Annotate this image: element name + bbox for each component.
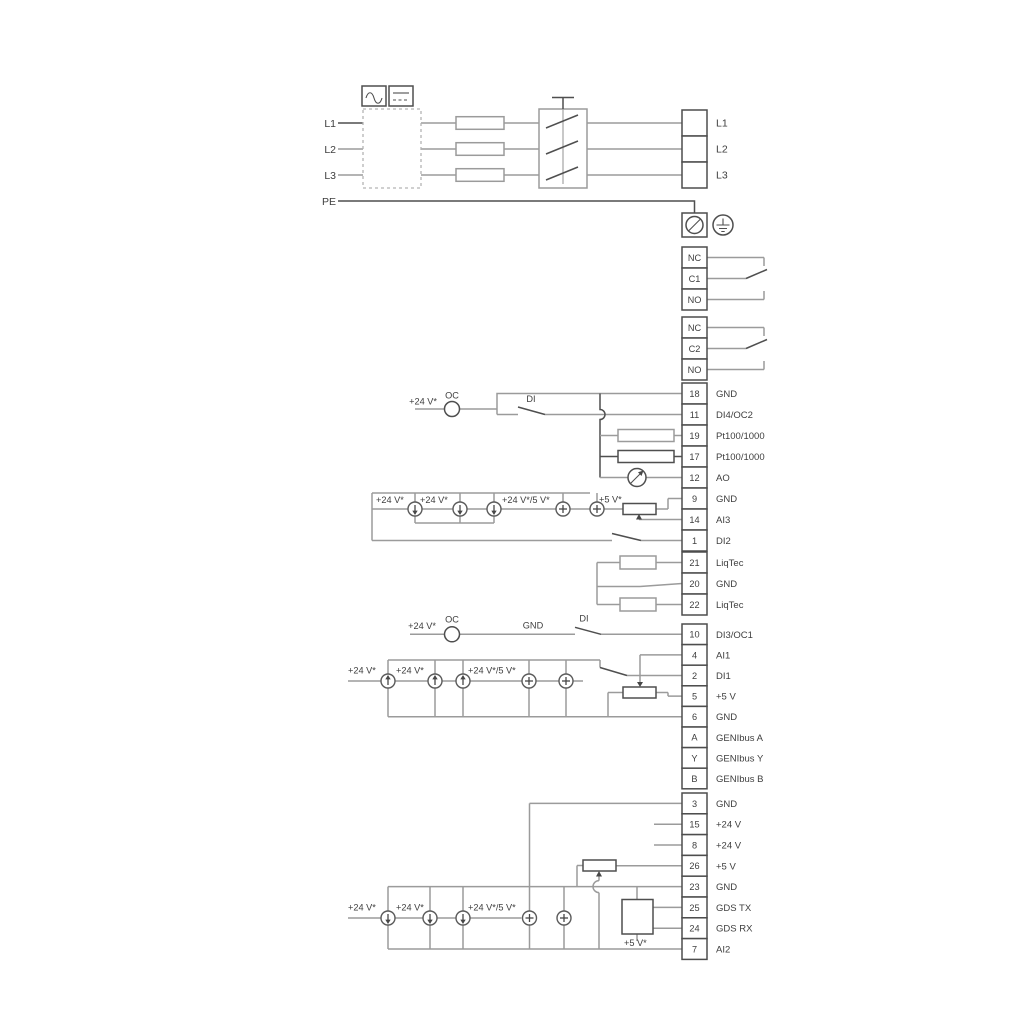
terminal-label: +24 V <box>716 841 742 852</box>
terminal-pin: 5 <box>692 692 697 702</box>
terminal-pin: NO <box>688 295 702 305</box>
terminal-pin: NC <box>688 323 702 333</box>
terminal-label: GENIbus Y <box>716 753 764 764</box>
current-sink-icon <box>423 911 437 925</box>
current-sink-icon <box>428 674 442 688</box>
label-plus24v-5v: +24 V*/5 V* <box>502 495 550 505</box>
terminal-pin: 21 <box>689 558 699 568</box>
ai1-sensor-options <box>348 655 682 717</box>
fuses <box>456 117 504 182</box>
wiring-diagram-page: L1 L2 L3 PE +24 V* OC DI +24 V* +24 V* +… <box>0 0 1024 1024</box>
open-collector-icon <box>445 627 460 642</box>
terminal-pin: NO <box>688 365 702 375</box>
gds-sensor-box <box>622 900 653 935</box>
di1-switch <box>600 668 627 676</box>
terminal-pin: 1 <box>692 536 697 546</box>
mains-output-terminals: L1L2L3 <box>682 110 728 188</box>
open-collector-icon <box>445 402 460 417</box>
label-gnd: GND <box>523 621 544 631</box>
pt100-sensor-2 <box>618 451 674 463</box>
emc-filter-box <box>362 86 421 188</box>
di4-oc2-circuit <box>415 394 682 487</box>
current-sink-icon <box>456 674 470 688</box>
label-plus24v: +24 V* <box>348 666 376 676</box>
terminal-label: GDS TX <box>716 903 752 914</box>
di2-switch <box>612 534 641 541</box>
terminal-label: AI2 <box>716 945 730 956</box>
relay2-contact <box>707 328 767 370</box>
terminal-label: GENIbus A <box>716 733 764 744</box>
terminal-cell <box>682 136 707 162</box>
relay-1-terminals: NCC1NO <box>682 247 707 310</box>
di3-oc1-circuit <box>410 627 682 642</box>
terminal-pin: C2 <box>689 344 701 354</box>
label-plus24v: +24 V* <box>376 495 404 505</box>
label-plus5v: +5 V* <box>624 938 647 948</box>
terminal-label: GND <box>716 799 737 810</box>
label-plus24v: +24 V* <box>420 495 448 505</box>
terminal-label: GND <box>716 579 737 590</box>
terminal-pin: 22 <box>689 600 699 610</box>
terminal-pin: 18 <box>689 389 699 399</box>
potentiometer <box>623 687 656 698</box>
terminal-pin: 19 <box>689 431 699 441</box>
terminal-pin: 6 <box>692 712 697 722</box>
terminal-pin: 25 <box>689 903 699 913</box>
terminal-label: +24 V <box>716 820 742 831</box>
terminal-label: L3 <box>716 170 728 182</box>
mains-input-wiring <box>338 123 682 175</box>
mains-label-l3: L3 <box>324 170 336 182</box>
wiring-diagram: L1 L2 L3 PE +24 V* OC DI +24 V* +24 V* +… <box>0 0 1024 1024</box>
terminal-label: DI2 <box>716 536 731 547</box>
io-block-3: 3GND15+24 V8+24 V26+5 V23GND25GDS TX24GD… <box>682 793 753 959</box>
terminal-pin: Y <box>691 753 697 763</box>
current-sink-icon <box>381 911 395 925</box>
terminal-label: +5 V <box>716 861 736 872</box>
label-plus24v-5v: +24 V*/5 V* <box>468 903 516 913</box>
terminal-pin: 12 <box>689 473 699 483</box>
current-source-icon <box>522 674 536 688</box>
terminal-label: Pt100/1000 <box>716 431 765 442</box>
wiper-arrow-icon <box>596 871 602 877</box>
label-oc: OC <box>445 391 459 401</box>
relay-2-terminals: NCC2NO <box>682 317 707 380</box>
terminal-pin: 9 <box>692 494 697 504</box>
liqtec-wiring <box>597 556 682 611</box>
terminal-pin: NC <box>688 253 702 263</box>
dc-icon-box <box>389 86 413 106</box>
di3-switch <box>575 627 601 634</box>
terminal-pin: 15 <box>689 820 699 830</box>
current-sink-icon <box>453 502 467 516</box>
ai2-sensor-options <box>348 803 682 949</box>
terminal-label: DI4/OC2 <box>716 410 753 421</box>
terminal-pin: 14 <box>689 515 699 525</box>
terminal-pin: 2 <box>692 671 697 681</box>
current-sink-icon <box>381 674 395 688</box>
terminal-pin: C1 <box>689 274 701 284</box>
current-source-icon <box>557 911 571 925</box>
label-plus24v: +24 V* <box>408 621 436 631</box>
label-di: DI <box>579 614 588 624</box>
liqtec-sensor-2 <box>620 598 656 611</box>
current-source-icon <box>559 674 573 688</box>
label-plus24v: +24 V* <box>348 903 376 913</box>
terminal-pin: 20 <box>689 579 699 589</box>
potentiometer <box>623 504 656 515</box>
potentiometer <box>583 860 616 871</box>
terminal-pin: 23 <box>689 882 699 892</box>
terminal-pin: 10 <box>689 630 699 640</box>
terminal-label: L1 <box>716 118 728 130</box>
terminal-label: L2 <box>716 144 728 156</box>
current-source-icon <box>556 502 570 516</box>
terminal-pin: 3 <box>692 799 697 809</box>
earth-icon <box>713 215 733 235</box>
fuse-l2 <box>456 143 504 156</box>
label-plus24v: +24 V* <box>409 397 437 407</box>
terminal-label: +5 V <box>716 692 736 703</box>
terminal-pin: 26 <box>689 861 699 871</box>
terminal-pin: 7 <box>692 944 697 954</box>
current-source-icon <box>523 911 537 925</box>
label-plus24v-5v: +24 V*/5 V* <box>468 666 516 676</box>
label-oc: OC <box>445 615 459 625</box>
terminal-pin: 4 <box>692 650 697 660</box>
terminal-label: GND <box>716 494 737 505</box>
disconnect-switch <box>539 98 587 189</box>
terminal-label: AI1 <box>716 650 730 661</box>
terminal-label: GENIbus B <box>716 774 764 785</box>
mains-label-pe: PE <box>322 196 336 208</box>
terminal-pin: B <box>691 774 697 784</box>
label-plus24v: +24 V* <box>396 903 424 913</box>
io-block-2: 10DI3/OC14AI12DI15+5 V6GNDAGENIbus AYGEN… <box>682 624 764 789</box>
io-block-1: 18GND11DI4/OC219Pt100/100017Pt100/100012… <box>682 383 765 551</box>
terminal-pin: 24 <box>689 924 699 934</box>
terminal-pin: 17 <box>689 452 699 462</box>
fuse-l3 <box>456 169 504 182</box>
terminal-pin: 11 <box>690 410 700 420</box>
pt100-sensor-1 <box>618 430 674 442</box>
analog-output-meter-icon <box>600 469 682 487</box>
di4-switch <box>518 407 545 415</box>
terminal-cell <box>682 110 707 136</box>
terminal-pin: A <box>691 733 698 743</box>
label-plus24v: +24 V* <box>396 666 424 676</box>
terminal-label: LiqTec <box>716 600 744 611</box>
terminal-label: GND <box>716 712 737 723</box>
current-sink-icon <box>456 911 470 925</box>
pe-wiring <box>338 201 733 237</box>
label-di: DI <box>526 394 535 404</box>
mains-label-l1: L1 <box>324 118 336 130</box>
current-sink-icon <box>487 502 501 516</box>
labels: L1 L2 L3 PE +24 V* OC DI +24 V* +24 V* +… <box>322 118 647 948</box>
mains-label-l2: L2 <box>324 144 336 156</box>
terminal-label: GDS RX <box>716 924 753 935</box>
terminal-label: LiqTec <box>716 558 744 569</box>
terminal-label: DI3/OC1 <box>716 630 753 641</box>
terminal-label: AI3 <box>716 515 730 526</box>
terminal-label: AO <box>716 473 730 484</box>
terminal-label: Pt100/1000 <box>716 452 765 463</box>
terminal-label: GND <box>716 389 737 400</box>
terminal-label: DI1 <box>716 671 731 682</box>
fuse-l1 <box>456 117 504 130</box>
terminal-pin: 8 <box>692 840 697 850</box>
liqtec-block: 21LiqTec20GND22LiqTec <box>682 552 744 615</box>
relay1-contact <box>707 258 767 300</box>
terminal-label: GND <box>716 882 737 893</box>
terminal-cell <box>682 162 707 188</box>
ac-icon-box <box>362 86 386 106</box>
liqtec-sensor-1 <box>620 556 656 569</box>
label-plus5v: +5 V* <box>599 495 622 505</box>
